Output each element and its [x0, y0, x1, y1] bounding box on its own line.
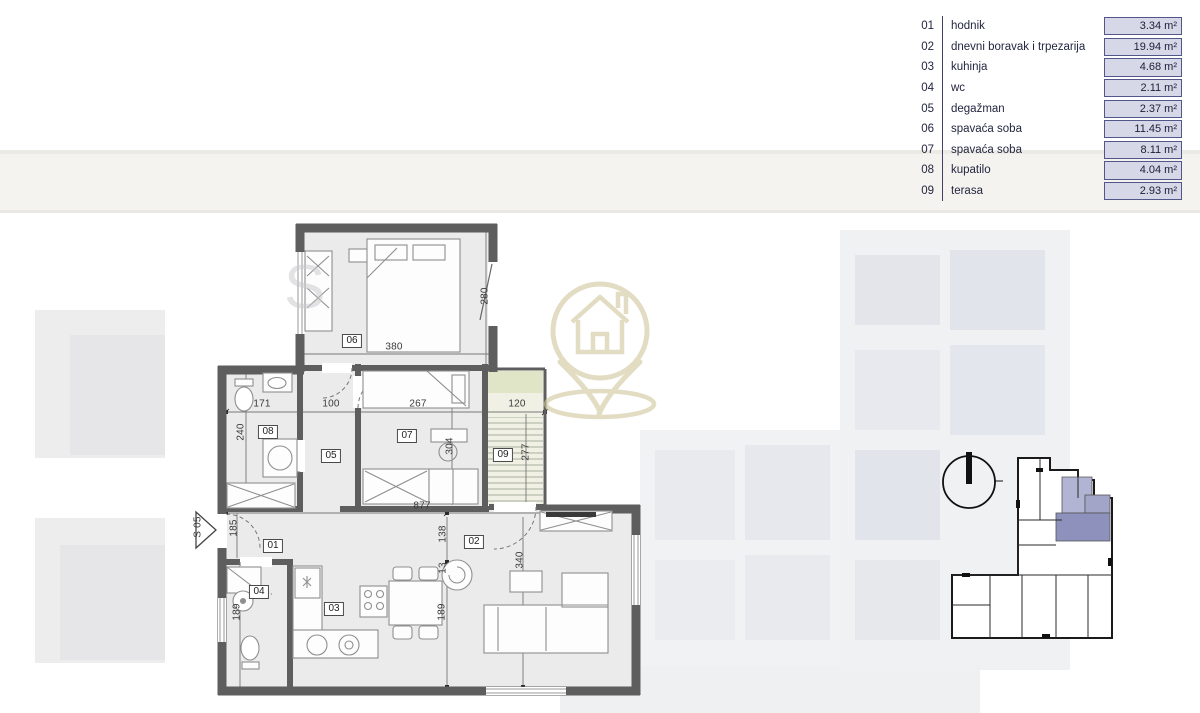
legend-row: 04wc2.11 m² [900, 78, 1182, 99]
legend-room-area: 2.93 m² [1104, 182, 1182, 200]
legend-row: 05degažman2.37 m² [900, 98, 1182, 119]
legend-room-name: wc [942, 78, 1104, 99]
legend-room-number: 02 [900, 41, 942, 53]
legend-row: 03kuhinja4.68 m² [900, 57, 1182, 78]
highlighted-unit-dark [1056, 513, 1110, 541]
page-root: S [0, 0, 1200, 713]
legend-room-name: spavaća soba [942, 140, 1104, 161]
legend-room-name: dnevni boravak i trpezarija [942, 37, 1104, 58]
legend-room-number: 08 [900, 164, 942, 176]
legend-room-name: kuhinja [942, 57, 1104, 78]
legend-room-area: 2.37 m² [1104, 100, 1182, 118]
north-compass-icon [943, 452, 1003, 508]
highlighted-unit-mid [1085, 495, 1110, 513]
legend-row: 01hodnik3.34 m² [900, 16, 1182, 37]
legend-room-area: 3.34 m² [1104, 17, 1182, 35]
legend-row: 06spavaća soba11.45 m² [900, 119, 1182, 140]
legend-room-area: 19.94 m² [1104, 38, 1182, 56]
background-letter-watermark: S [284, 252, 325, 323]
legend-room-number: 07 [900, 144, 942, 156]
house-location-pin-logo [546, 284, 654, 417]
legend-room-number: 05 [900, 103, 942, 115]
site-plan-minimap [952, 458, 1112, 638]
legend-room-area: 2.11 m² [1104, 79, 1182, 97]
room-legend-table: 01hodnik3.34 m²02dnevni boravak i trpeza… [900, 16, 1182, 201]
legend-room-number: 04 [900, 82, 942, 94]
legend-room-area: 8.11 m² [1104, 141, 1182, 159]
entrance-marker [196, 512, 216, 548]
legend-room-number: 06 [900, 123, 942, 135]
legend-room-name: degažman [942, 98, 1104, 119]
legend-room-number: 03 [900, 61, 942, 73]
legend-room-number: 09 [900, 185, 942, 197]
legend-room-number: 01 [900, 20, 942, 32]
legend-room-area: 4.68 m² [1104, 58, 1182, 76]
legend-room-name: spavaća soba [942, 119, 1104, 140]
legend-room-name: kupatilo [942, 160, 1104, 181]
legend-room-area: 11.45 m² [1104, 120, 1182, 138]
legend-row: 02dnevni boravak i trpezarija19.94 m² [900, 37, 1182, 58]
legend-room-name: hodnik [942, 16, 1104, 37]
legend-room-area: 4.04 m² [1104, 161, 1182, 179]
legend-room-name: terasa [942, 181, 1104, 202]
legend-row: 08kupatilo4.04 m² [900, 160, 1182, 181]
legend-row: 09terasa2.93 m² [900, 181, 1182, 202]
legend-row: 07spavaća soba8.11 m² [900, 140, 1182, 161]
